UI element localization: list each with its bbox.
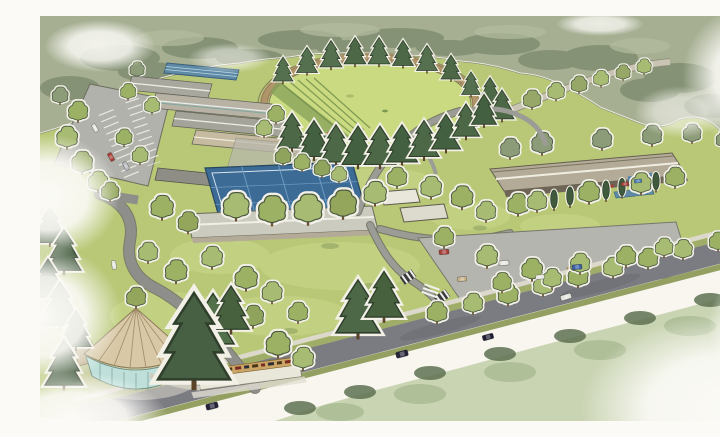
deciduous-tree [266, 331, 290, 358]
car [572, 264, 582, 270]
deciduous-tree [132, 147, 148, 165]
deciduous-tree [332, 166, 347, 183]
car [499, 260, 509, 266]
deciduous-tree [202, 246, 223, 269]
deciduous-tree [477, 201, 496, 223]
deciduous-tree [178, 212, 198, 235]
aerial-rendering [40, 16, 720, 421]
deciduous-tree [235, 266, 257, 291]
columnar-tree [603, 181, 610, 202]
deciduous-tree [223, 193, 249, 222]
deciduous-tree [127, 287, 146, 309]
rendering-canvas: Hand-drawn watercolor aerial rendering o… [40, 16, 720, 421]
sage-tree [593, 129, 612, 151]
deciduous-tree [330, 190, 356, 220]
deciduous-tree [262, 282, 282, 305]
car [457, 276, 467, 281]
deciduous-tree [294, 194, 322, 226]
deciduous-tree [427, 302, 447, 325]
deciduous-tree [289, 302, 308, 324]
deciduous-tree [709, 232, 720, 252]
car [621, 182, 629, 186]
deciduous-tree [477, 245, 498, 268]
deciduous-tree [293, 347, 314, 370]
roadside-tree [523, 90, 541, 110]
car [439, 249, 449, 255]
deciduous-tree [579, 181, 600, 204]
deciduous-tree [666, 167, 685, 189]
car [634, 179, 642, 183]
deciduous-tree [617, 246, 636, 268]
roadside-tree [548, 82, 565, 101]
deciduous-tree [543, 269, 561, 290]
deciduous-tree [294, 154, 310, 172]
roadside-tree [616, 65, 630, 81]
deciduous-tree [364, 181, 386, 206]
deciduous-tree [464, 293, 483, 315]
deciduous-tree [421, 176, 442, 199]
deciduous-tree [571, 253, 590, 275]
deciduous-tree [388, 167, 407, 189]
deciduous-tree [151, 195, 173, 220]
deciduous-tree [121, 83, 136, 100]
sage-tree [52, 87, 68, 105]
deciduous-tree [528, 191, 547, 213]
deciduous-tree [451, 186, 473, 210]
roadside-tree [571, 76, 587, 94]
roadside-tree [594, 70, 609, 87]
car [535, 274, 544, 279]
deciduous-tree [275, 148, 291, 166]
deciduous-tree [69, 101, 88, 123]
deciduous-tree [655, 238, 673, 258]
columnar-tree [653, 172, 659, 192]
deciduous-tree [259, 196, 286, 227]
sage-tree [501, 138, 520, 160]
columnar-tree [551, 190, 558, 211]
deciduous-tree [314, 160, 330, 178]
deciduous-tree [631, 173, 651, 196]
deciduous-tree [139, 242, 158, 264]
deciduous-tree [116, 129, 132, 147]
columnar-tree [619, 178, 625, 198]
roadside-tree [637, 59, 651, 75]
deciduous-tree [165, 260, 187, 284]
columnar-tree [567, 187, 574, 208]
deciduous-tree [674, 240, 692, 261]
deciduous-tree [256, 120, 272, 138]
deciduous-tree [493, 273, 511, 294]
deciduous-tree [435, 227, 454, 249]
deciduous-tree [145, 97, 160, 114]
